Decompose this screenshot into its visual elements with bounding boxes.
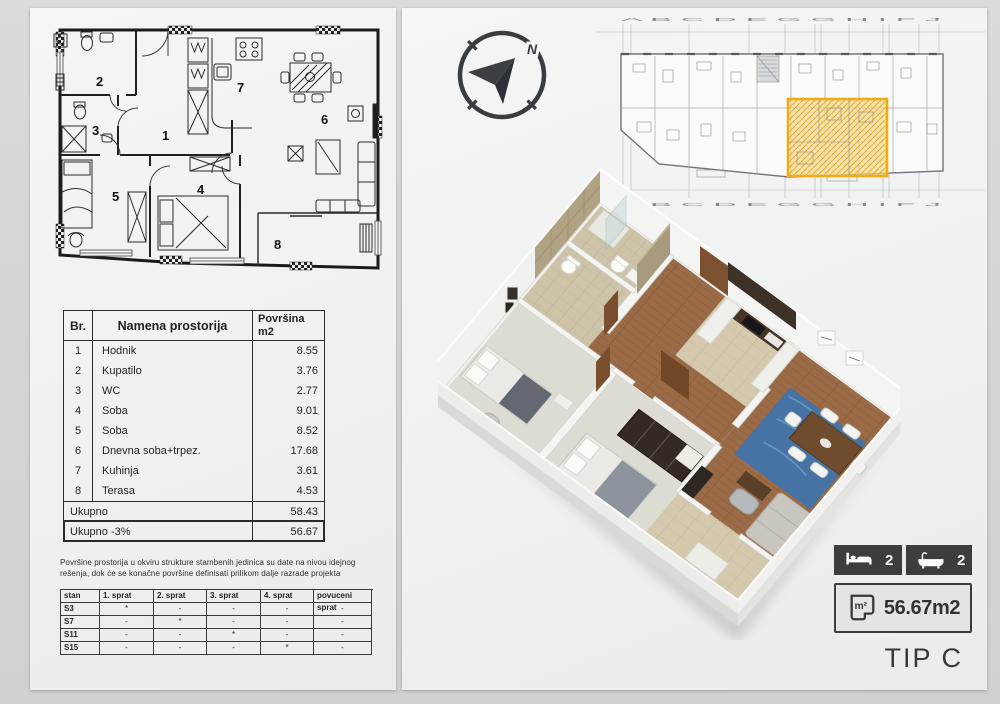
row-br: 2 — [64, 361, 93, 381]
row-name: Kuhinja — [93, 461, 253, 481]
picture-frame — [818, 331, 835, 345]
header-br: Br. — [64, 311, 93, 340]
table-row: 6Dnevna soba+trpez.17.68 — [64, 441, 324, 461]
row-name: Soba — [93, 401, 253, 421]
floors-cell: - — [154, 642, 207, 655]
floors-cell: S3 — [61, 603, 100, 616]
total-value: 58.43 — [253, 502, 324, 521]
floors-cell: S7 — [61, 616, 100, 629]
floors-cell: - — [314, 616, 372, 629]
floors-cell: * — [154, 616, 207, 629]
row-area: 3.76 — [253, 361, 324, 381]
floors-cell: - — [261, 616, 314, 629]
floors-header: povuceni sprat — [314, 590, 372, 603]
rooms-area-table: Br. Namena prostorija Površina m2 1Hodni… — [63, 310, 325, 542]
row-area: 2.77 — [253, 381, 324, 401]
floors-cell: - — [154, 603, 207, 616]
floors-cell: - — [207, 603, 261, 616]
floors-header: 3. sprat — [207, 590, 261, 603]
grid-letters-top: A B C D E G G H I F J — [621, 17, 941, 22]
room-label-2: 2 — [96, 74, 103, 89]
table-row: 3WC2.77 — [64, 381, 324, 401]
row-br: 6 — [64, 441, 93, 461]
floors-cell: - — [100, 642, 154, 655]
picture-frame — [846, 351, 863, 365]
total-label: Ukupno — [64, 502, 253, 521]
floors-cell: S11 — [61, 629, 100, 642]
kitchen-fixtures — [188, 38, 262, 134]
row-br: 7 — [64, 461, 93, 481]
table-row: 8Terasa4.53 — [64, 481, 324, 501]
floors-cell: S15 — [61, 642, 100, 655]
compass-icon: N — [447, 20, 557, 130]
floors-cell: * — [207, 629, 261, 642]
row-name: Kupatilo — [93, 361, 253, 381]
floors-cell: - — [207, 616, 261, 629]
room-label-6: 6 — [321, 112, 328, 127]
bathrooms-count: 2 — [957, 552, 965, 569]
row-area: 9.01 — [253, 401, 324, 421]
row-area: 3.61 — [253, 461, 324, 481]
floors-header: 2. sprat — [154, 590, 207, 603]
row-br: 3 — [64, 381, 93, 401]
room-labels: 1 2 3 4 5 6 7 8 — [92, 74, 328, 252]
area-value: 56.67m2 — [884, 597, 960, 620]
row-name: Dnevna soba+trpez. — [93, 441, 253, 461]
picture-frame — [507, 287, 518, 300]
header-area: Površina m2 — [253, 311, 324, 340]
table-row: 7Kuhinja3.61 — [64, 461, 324, 481]
floors-header: stan — [61, 590, 100, 603]
table-row: 5Soba8.52 — [64, 421, 324, 441]
floors-cell: - — [314, 629, 372, 642]
floors-cell: * — [100, 603, 154, 616]
floors-cell: - — [100, 629, 154, 642]
floorplan-2d: 1 2 3 4 5 6 7 8 — [40, 16, 390, 298]
floors-cell: - — [314, 642, 372, 655]
row-name: Soba — [93, 421, 253, 441]
left-page-panel: 1 2 3 4 5 6 7 8 Br. Namena prostorija Po… — [30, 8, 396, 690]
row-area: 8.52 — [253, 421, 324, 441]
disclaimer-note: Površine prostorija u okviru strukture s… — [60, 557, 384, 579]
room-label-8: 8 — [274, 237, 281, 252]
row-br: 8 — [64, 481, 93, 501]
header-name: Namena prostorija — [93, 311, 253, 340]
room-label-1: 1 — [162, 128, 169, 143]
interior-walls — [60, 30, 240, 262]
row-name: Terasa — [93, 481, 253, 501]
dining-set — [281, 53, 341, 102]
bedroom4-furniture — [158, 157, 230, 250]
floors-cell: * — [261, 642, 314, 655]
floors-cell: - — [207, 642, 261, 655]
floors-header: 1. sprat — [100, 590, 154, 603]
door-arcs — [100, 30, 240, 186]
floors-cell: - — [154, 629, 207, 642]
outer-walls — [60, 30, 378, 268]
row-area: 17.68 — [253, 441, 324, 461]
bedroom5-furniture — [62, 160, 146, 247]
floors-header: 4. sprat — [261, 590, 314, 603]
floors-cell: - — [261, 603, 314, 616]
bedrooms-count: 2 — [885, 552, 893, 569]
floors-cell: - — [100, 616, 154, 629]
row-name: Hodnik — [93, 341, 253, 361]
area-box: m² 56.67m2 — [834, 583, 972, 633]
bedrooms-badge: 2 — [834, 545, 902, 575]
row-name: WC — [93, 381, 253, 401]
terrace-fixtures — [360, 224, 372, 252]
m2-icon-label: m² — [854, 601, 867, 612]
header-area-line1: Površina — [258, 313, 324, 326]
floors-cell: - — [314, 603, 372, 616]
m2-icon: m² — [846, 592, 878, 624]
row-br: 4 — [64, 401, 93, 421]
bed-icon — [843, 551, 875, 569]
table-row: 4Soba9.01 — [64, 401, 324, 421]
room-label-7: 7 — [237, 80, 244, 95]
row-area: 8.55 — [253, 341, 324, 361]
room-label-3: 3 — [92, 123, 99, 138]
table-row: 1Hodnik8.55 — [64, 341, 324, 361]
wall-section-markers — [56, 26, 382, 270]
total2-value: 56.67 — [253, 522, 324, 541]
row-br: 5 — [64, 421, 93, 441]
living-furniture — [288, 104, 378, 212]
table-row: 2Kupatilo3.76 — [64, 361, 324, 381]
floors-table: stan 1. sprat 2. sprat 3. sprat 4. sprat… — [60, 589, 373, 655]
total-row: Ukupno 58.43 — [64, 501, 324, 521]
floors-cell: - — [261, 629, 314, 642]
bath-icon — [915, 551, 947, 569]
compass-north-label: N — [527, 41, 538, 57]
room-label-5: 5 — [112, 189, 119, 204]
row-area: 4.53 — [253, 481, 324, 501]
total2-label: Ukupno -3% — [64, 522, 253, 541]
total-minus3-row: Ukupno -3% 56.67 — [64, 521, 324, 541]
right-page-panel: N A B C D E G G H I F J A B C D E G G H … — [402, 8, 987, 690]
room-label-4: 4 — [197, 182, 205, 197]
row-br: 1 — [64, 341, 93, 361]
rooms-table-header: Br. Namena prostorija Površina m2 — [64, 311, 324, 341]
header-area-line2: m2 — [258, 326, 324, 339]
apartment-type-label: TIP C — [884, 643, 963, 674]
bathrooms-badge: 2 — [906, 545, 972, 575]
